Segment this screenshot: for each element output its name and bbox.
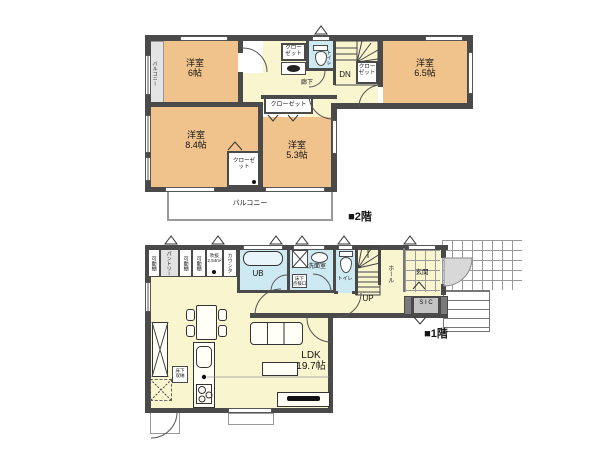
exterior-steps <box>443 290 490 332</box>
chair <box>218 325 227 337</box>
wall <box>441 245 446 258</box>
counter-label: カウンタ <box>226 251 232 275</box>
1f-toilet-label: トイレ <box>334 277 356 283</box>
2f-hallway-label: 廊下 <box>296 80 318 87</box>
pantry-label: パントリー <box>165 250 171 276</box>
window <box>243 245 283 250</box>
window <box>408 245 436 250</box>
window <box>180 36 228 41</box>
2f-balcony-left-label: バルコニー <box>151 47 157 99</box>
void-size: 2.54m² <box>207 258 221 263</box>
wall <box>337 103 473 109</box>
entrance-label: 玄関 <box>408 269 436 276</box>
shelf1-label: 可動棚 <box>150 251 156 275</box>
wall <box>238 41 243 53</box>
wall <box>378 245 381 285</box>
sic-label: S I C <box>413 300 439 307</box>
2f-room-ne-label: 洋室 6.5帖 <box>401 58 449 78</box>
wall <box>151 102 263 107</box>
stove-icon <box>196 384 212 404</box>
refrigerator-space <box>150 379 172 401</box>
window <box>425 36 463 41</box>
sic-shelf-left <box>404 296 412 315</box>
wall <box>250 313 333 318</box>
2f-closet-wide-label: クローゼット <box>266 102 311 109</box>
chair <box>186 325 195 337</box>
2f-entry-nook <box>243 41 263 73</box>
room-size: 6.5帖 <box>414 68 436 78</box>
window <box>338 245 353 250</box>
dining-table <box>196 305 217 340</box>
void-label: 吹抜 2.54m² <box>206 253 223 263</box>
hall-label: ホール <box>386 257 393 291</box>
floor-access-label: 床下 点検口 <box>292 276 307 286</box>
wall <box>355 245 358 295</box>
washbasin-icon <box>287 65 300 72</box>
wall <box>441 284 446 295</box>
window <box>332 120 337 154</box>
window <box>312 36 330 41</box>
sic-shelf-right <box>440 296 448 315</box>
window <box>145 282 151 312</box>
window <box>165 187 215 192</box>
sofa <box>250 322 303 345</box>
2f-closet-84-label: クローゼット <box>232 158 256 170</box>
text: 点検口 <box>293 281 307 286</box>
chair <box>218 309 227 321</box>
wall <box>237 245 240 293</box>
window <box>265 187 325 192</box>
floor1-label: ■1階 <box>414 328 458 340</box>
2f-room-sw-label: 洋室 8.4帖 <box>172 130 220 150</box>
room-name: 洋室 <box>288 140 306 150</box>
room-size: 5.3帖 <box>286 150 308 160</box>
2f-closet-65-label: クローゼット <box>358 64 376 76</box>
backdoor-step <box>150 412 180 434</box>
wall <box>306 41 309 71</box>
2f-closet-top-label: クローゼット <box>283 45 304 57</box>
2f-stairs-dn-label: DN <box>336 71 354 80</box>
ldk-name: LDK <box>301 350 320 361</box>
chair <box>186 309 195 321</box>
sink-oval-icon <box>311 252 328 263</box>
window <box>145 157 151 181</box>
room-size: 8.4帖 <box>185 140 207 150</box>
room-name: 洋室 <box>187 130 205 140</box>
kitchen-sink <box>196 346 212 368</box>
tall-cabinet <box>152 322 168 377</box>
text: 収納 <box>176 373 185 378</box>
floor-storage-label: 床下 収納 <box>172 368 188 378</box>
wall <box>237 290 333 293</box>
2f-room-nw-label: 洋室 6帖 <box>173 58 217 78</box>
room-name: 洋室 <box>186 58 204 68</box>
floorplan-canvas: 洋室 6帖 洋室 8.4帖 洋室 5.3帖 洋室 6.5帖 クローゼット クロー… <box>0 0 600 449</box>
wall <box>238 72 243 103</box>
stairs-up-label: UP <box>358 295 378 304</box>
window-step <box>228 413 274 425</box>
2f-room-s-label: 洋室 5.3帖 <box>273 140 321 160</box>
room-name: 洋室 <box>416 58 434 68</box>
washroom-label: 洗面室 <box>303 264 331 271</box>
ldk-size: 19.7帖 <box>296 361 325 372</box>
window <box>228 408 272 413</box>
window <box>468 52 473 94</box>
shelf2-label: 可動棚 <box>182 251 188 275</box>
wall <box>352 291 358 294</box>
window <box>145 115 151 153</box>
bathtub-icon <box>243 251 283 266</box>
wall <box>403 248 405 292</box>
porch-tiles <box>442 240 522 290</box>
tv-icon <box>287 396 320 401</box>
wall <box>287 247 290 291</box>
wall <box>378 41 383 87</box>
wall <box>306 68 335 71</box>
2f-balcony-bottom-label: バルコニー <box>215 200 285 208</box>
ldk-label: LDK 19.7帖 <box>285 350 337 372</box>
floor2-label: ■2階 <box>338 211 382 223</box>
room-size: 6帖 <box>188 68 202 78</box>
2f-toilet-label: トイレ <box>325 46 331 68</box>
wall <box>333 247 336 293</box>
shelf3-label: 可動棚 <box>195 251 201 275</box>
wall <box>334 291 338 294</box>
bath-label: UB <box>248 270 268 279</box>
